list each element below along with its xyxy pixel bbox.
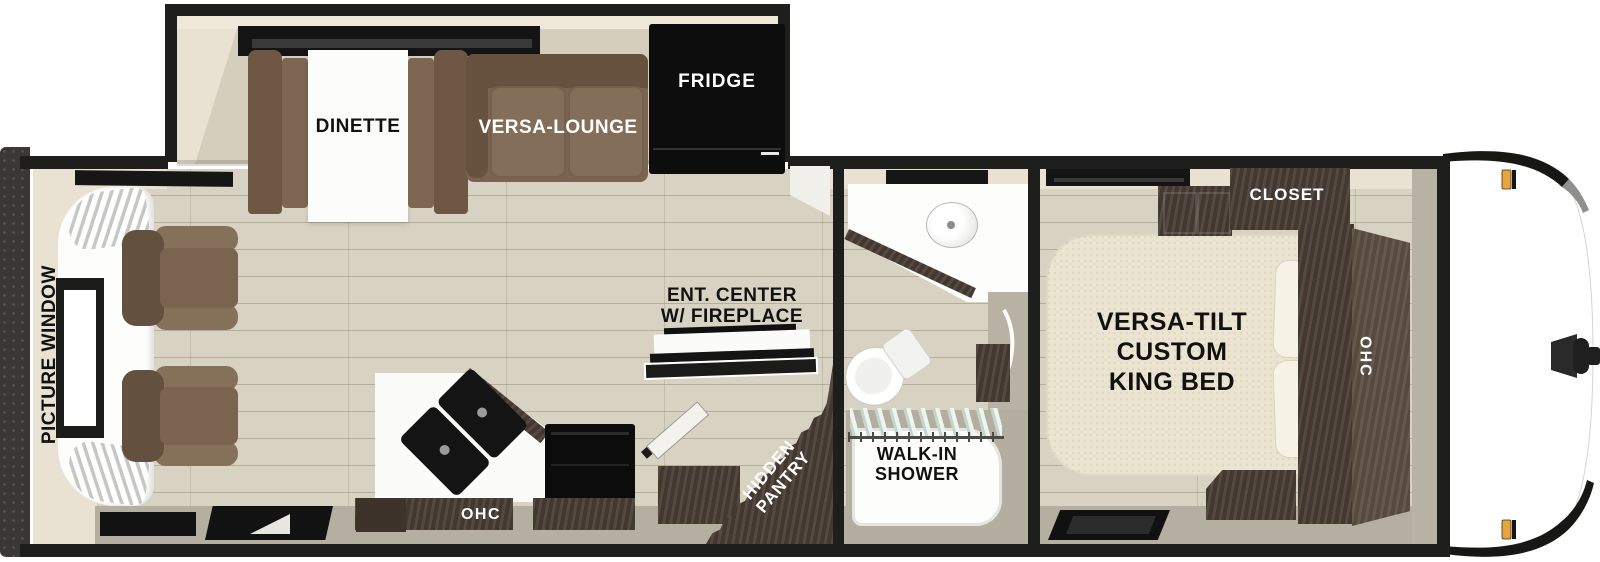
fridge [649, 24, 785, 174]
closet-label: CLOSET [1242, 184, 1332, 206]
bath-sink-drain [947, 221, 955, 229]
bathroom-window [886, 170, 988, 185]
versa-lounge-label: VERSA-LOUNGE [470, 117, 646, 139]
bathroom-wall-left [833, 169, 844, 544]
entry-step [205, 506, 333, 540]
range-base-cabinet [533, 498, 635, 530]
bedroom-ohc-cabinet [1298, 224, 1354, 524]
ent-center-label: ENT. CENTER W/ FIREPLACE [632, 282, 832, 330]
shower-rod [848, 436, 1004, 439]
bedroom-window-glass [1054, 178, 1184, 182]
picture-window-label: PICTURE WINDOW [20, 250, 80, 460]
main-wall-top-right [788, 156, 1450, 169]
recliner-chair-top [122, 226, 242, 330]
marker-light-bottom [1502, 520, 1511, 539]
floorplan: PICTURE WINDOW DINETTE VERSA-LOUNGE FRID… [0, 0, 1600, 562]
right-wall-face [1412, 169, 1437, 544]
slideout-wall-top [165, 4, 790, 16]
dinette-bench-left-back [248, 50, 282, 214]
slideout-window-glass [252, 39, 532, 48]
bedroom-floor-vent-inner [1066, 516, 1156, 534]
kitchen-range [545, 424, 635, 502]
main-wall-top-left [20, 156, 168, 169]
marker-light-bottom-shadow [1512, 520, 1516, 539]
recliner-chair-bottom [122, 366, 242, 466]
closet-overhead-ext [1158, 186, 1232, 236]
main-wall-right [1437, 156, 1450, 557]
nightstand [1206, 470, 1296, 520]
bedroom-ohc-label: OHC [1352, 322, 1378, 392]
living-top-window [75, 170, 233, 187]
kitchen-ohc-label: OHC [443, 504, 519, 526]
dinette-bench-right-back [434, 50, 468, 214]
marker-light-top-shadow [1512, 170, 1516, 189]
king-bed-label: VERSA-TILT CUSTOM KING BED [1076, 304, 1268, 400]
bathroom-wall-right [1028, 169, 1040, 544]
walk-in-shower-label: WALK-IN SHOWER [854, 442, 980, 486]
fridge-label: FRIDGE [649, 71, 785, 93]
bottom-window [100, 512, 196, 536]
front-cap [1443, 146, 1600, 562]
slideout-wall-left [165, 4, 177, 162]
marker-light-top [1502, 170, 1511, 189]
dinette-label: DINETTE [300, 116, 416, 138]
main-wall-bottom [20, 544, 1450, 557]
kitchen-ohc-endcap [356, 498, 406, 532]
bath-cabinet [976, 344, 1010, 402]
